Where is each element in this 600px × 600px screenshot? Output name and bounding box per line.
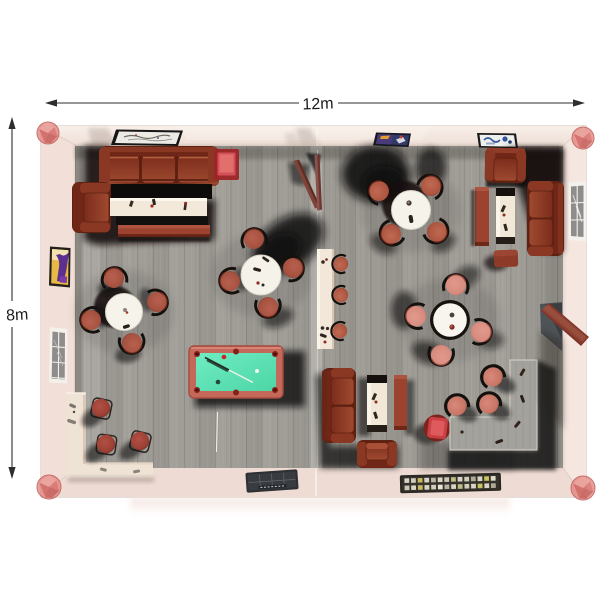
- svg-text:12m: 12m: [302, 95, 334, 113]
- svg-text:8m: 8m: [6, 306, 29, 324]
